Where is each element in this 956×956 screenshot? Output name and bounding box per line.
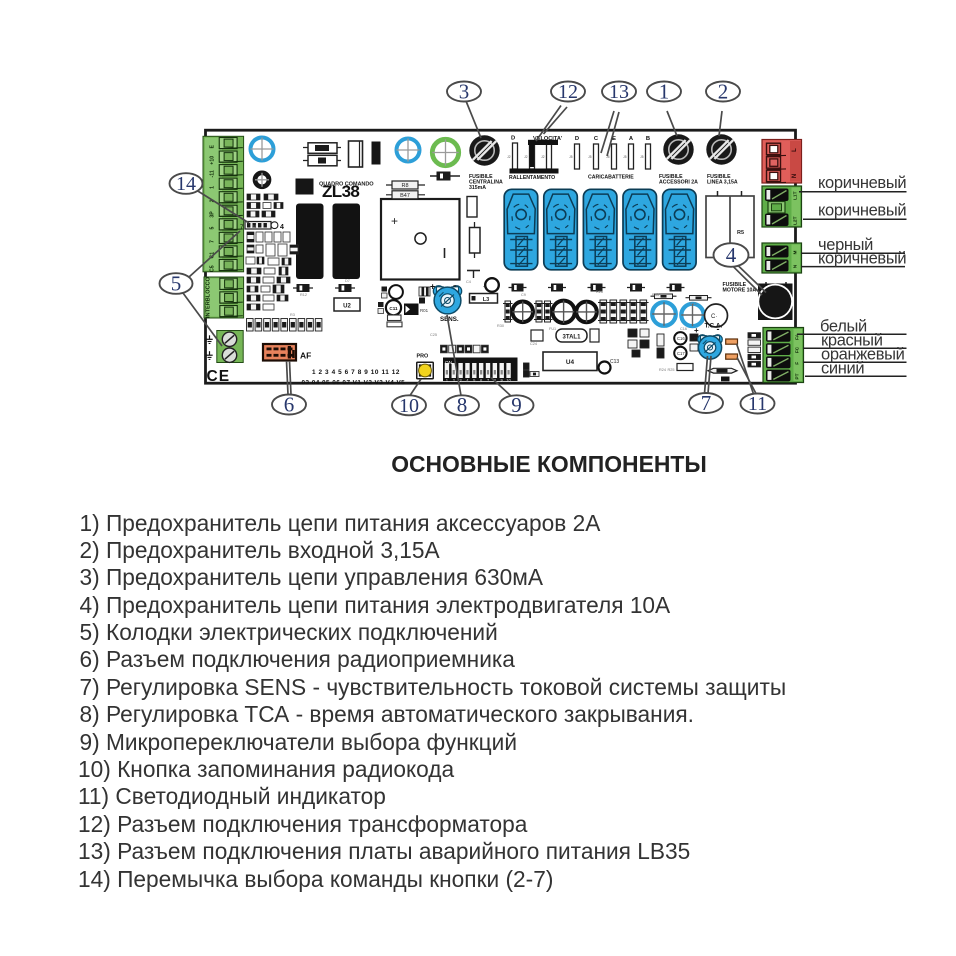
svg-text:J5: J5	[623, 155, 627, 159]
svg-text:C16: C16	[677, 336, 685, 341]
svg-text:C25: C25	[430, 333, 437, 337]
svg-text:5: 5	[210, 226, 216, 229]
svg-text:R30: R30	[497, 324, 504, 328]
svg-text:C5: C5	[210, 265, 216, 272]
svg-text:D12: D12	[690, 302, 697, 306]
svg-text:D: D	[575, 136, 579, 142]
svg-text:5: 5	[171, 271, 182, 295]
svg-text:+: +	[694, 326, 699, 335]
svg-text:U4: U4	[566, 359, 575, 366]
svg-text:+: +	[391, 214, 398, 228]
svg-text:N: N	[792, 174, 798, 178]
svg-text:R26: R26	[596, 290, 603, 294]
svg-text:3: 3	[459, 79, 470, 103]
svg-text:+10: +10	[210, 156, 216, 165]
svg-text:2: 2	[718, 79, 729, 103]
svg-text:LINEA 3,15A: LINEA 3,15A	[707, 179, 738, 185]
svg-text:8: 8	[457, 393, 468, 417]
svg-text:P1: P1	[252, 225, 257, 229]
svg-text:-11: -11	[210, 170, 216, 177]
svg-text:13: 13	[609, 81, 629, 103]
svg-text:CE: CE	[207, 368, 231, 385]
svg-text:ZL38: ZL38	[322, 182, 359, 201]
svg-text:6: 6	[284, 392, 295, 416]
svg-text:12: 12	[558, 81, 578, 103]
svg-text:10: 10	[506, 378, 511, 383]
svg-text:MOTORE 10A: MOTORE 10A	[723, 287, 757, 293]
svg-text:11: 11	[748, 393, 767, 415]
svg-text:F: F	[795, 362, 801, 365]
svg-text:N: N	[793, 264, 799, 268]
svg-text:1: 1	[659, 79, 670, 103]
svg-text:R12: R12	[300, 293, 307, 297]
svg-text:R01: R01	[420, 308, 429, 313]
svg-text:RALLENTAMENTO: RALLENTAMENTO	[509, 175, 555, 181]
svg-text:R5: R5	[737, 230, 744, 236]
svg-text:M: M	[793, 251, 799, 255]
svg-text:315mA: 315mA	[469, 185, 486, 191]
svg-text:INTERBLOCCO: INTERBLOCCO	[206, 276, 212, 318]
svg-text:J2: J2	[524, 155, 528, 159]
svg-text:L1T: L1T	[793, 191, 799, 200]
svg-text:10: 10	[399, 395, 419, 417]
svg-text:3TAL1: 3TAL1	[563, 335, 582, 341]
svg-text:C4: C4	[466, 280, 471, 284]
svg-text:E: E	[210, 144, 216, 148]
svg-text:R8: R8	[401, 183, 408, 189]
svg-text:J5: J5	[569, 155, 573, 159]
svg-text:SENS.: SENS.	[440, 316, 459, 323]
svg-text:J2: J2	[507, 155, 511, 159]
svg-text:-: -	[453, 281, 456, 292]
svg-text:4: 4	[280, 224, 284, 231]
svg-text:14: 14	[176, 173, 196, 195]
svg-text:FU1: FU1	[549, 327, 556, 331]
svg-text:C24: C24	[530, 342, 537, 346]
svg-text:ACCESSORI 2A: ACCESSORI 2A	[659, 179, 698, 185]
svg-text:9: 9	[511, 393, 522, 417]
svg-text:+: +	[483, 284, 486, 290]
svg-text:+: +	[430, 282, 435, 292]
svg-text:03 04 05 06 07 V1 V2 V3 V4 V5: 03 04 05 06 07 V1 V2 V3 V4 V5	[302, 380, 406, 387]
svg-text:J2: J2	[541, 155, 545, 159]
svg-text:AF: AF	[300, 351, 311, 361]
svg-text:R24: R24	[659, 368, 666, 372]
svg-text:CARICABATTERIE: CARICABATTERIE	[588, 175, 634, 181]
svg-text:C17: C17	[677, 351, 685, 356]
svg-text:B47: B47	[400, 193, 410, 199]
svg-text:J5: J5	[640, 155, 644, 159]
svg-text:-: -	[717, 324, 720, 334]
svg-text:L: L	[792, 148, 798, 152]
svg-text:7: 7	[210, 240, 216, 243]
svg-text:FC: FC	[795, 346, 801, 353]
svg-text:J5: J5	[588, 155, 592, 159]
svg-text:D: D	[511, 136, 515, 142]
svg-text:C16: C16	[680, 327, 687, 331]
svg-text:L2T: L2T	[793, 216, 799, 225]
svg-text:3P: 3P	[210, 211, 216, 218]
svg-text:C·: C·	[711, 314, 717, 320]
svg-text:B: B	[646, 136, 650, 142]
svg-text:PT: PT	[795, 373, 801, 379]
svg-text:U2: U2	[343, 304, 351, 310]
svg-text:R34: R34	[652, 293, 659, 297]
svg-text:C11: C11	[389, 306, 398, 311]
svg-text:1: 1	[210, 186, 216, 189]
svg-text:R3: R3	[290, 313, 295, 317]
svg-text:L3: L3	[483, 297, 490, 303]
svg-text:T.C.A.: T.C.A.	[705, 323, 723, 330]
svg-text:C9: C9	[521, 293, 526, 297]
svg-text:D7: D7	[345, 279, 350, 283]
svg-text:синий: синий	[821, 360, 864, 378]
svg-text:C13: C13	[610, 359, 619, 365]
svg-text:коричневый: коричневый	[818, 201, 906, 219]
svg-text:7: 7	[701, 391, 712, 415]
svg-text:R25: R25	[668, 368, 675, 372]
svg-text:PRO: PRO	[417, 354, 429, 360]
svg-text:4: 4	[726, 243, 737, 267]
svg-text:коричневый: коричневый	[818, 249, 906, 267]
svg-text:1 2 3 4 5 6 7 8 9 10 11 12: 1 2 3 4 5 6 7 8 9 10 11 12	[312, 369, 400, 376]
svg-text:коричневый: коричневый	[818, 174, 906, 192]
